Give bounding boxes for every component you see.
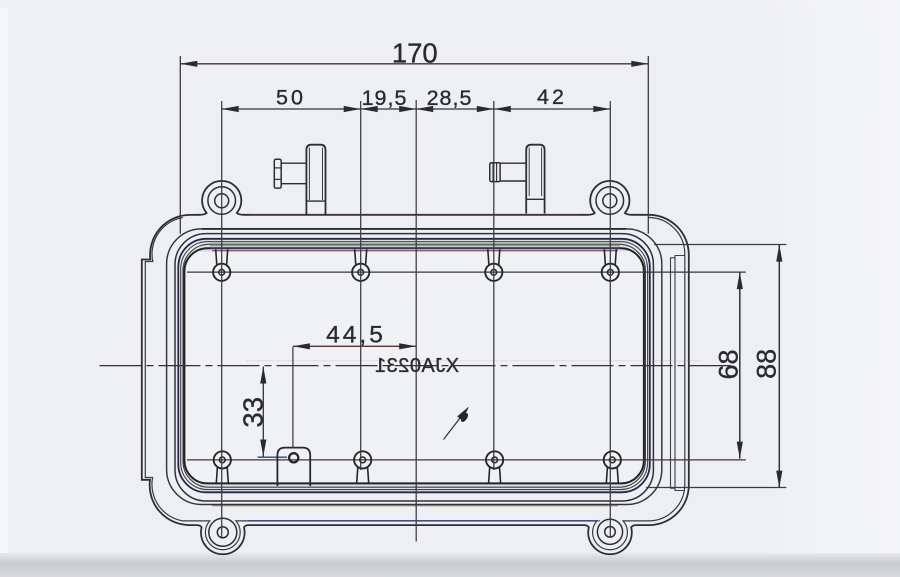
svg-text:68: 68 bbox=[713, 349, 743, 379]
svg-text:44,5: 44,5 bbox=[326, 321, 386, 348]
svg-text:33: 33 bbox=[238, 397, 269, 428]
svg-text:19,5: 19,5 bbox=[362, 86, 408, 110]
svg-text:28,5: 28,5 bbox=[427, 86, 473, 110]
svg-text:88: 88 bbox=[752, 349, 782, 379]
svg-text:42: 42 bbox=[537, 85, 567, 109]
svg-text:XJA0231: XJA0231 bbox=[374, 355, 459, 377]
svg-text:50: 50 bbox=[276, 86, 306, 110]
svg-text:170: 170 bbox=[392, 38, 438, 69]
